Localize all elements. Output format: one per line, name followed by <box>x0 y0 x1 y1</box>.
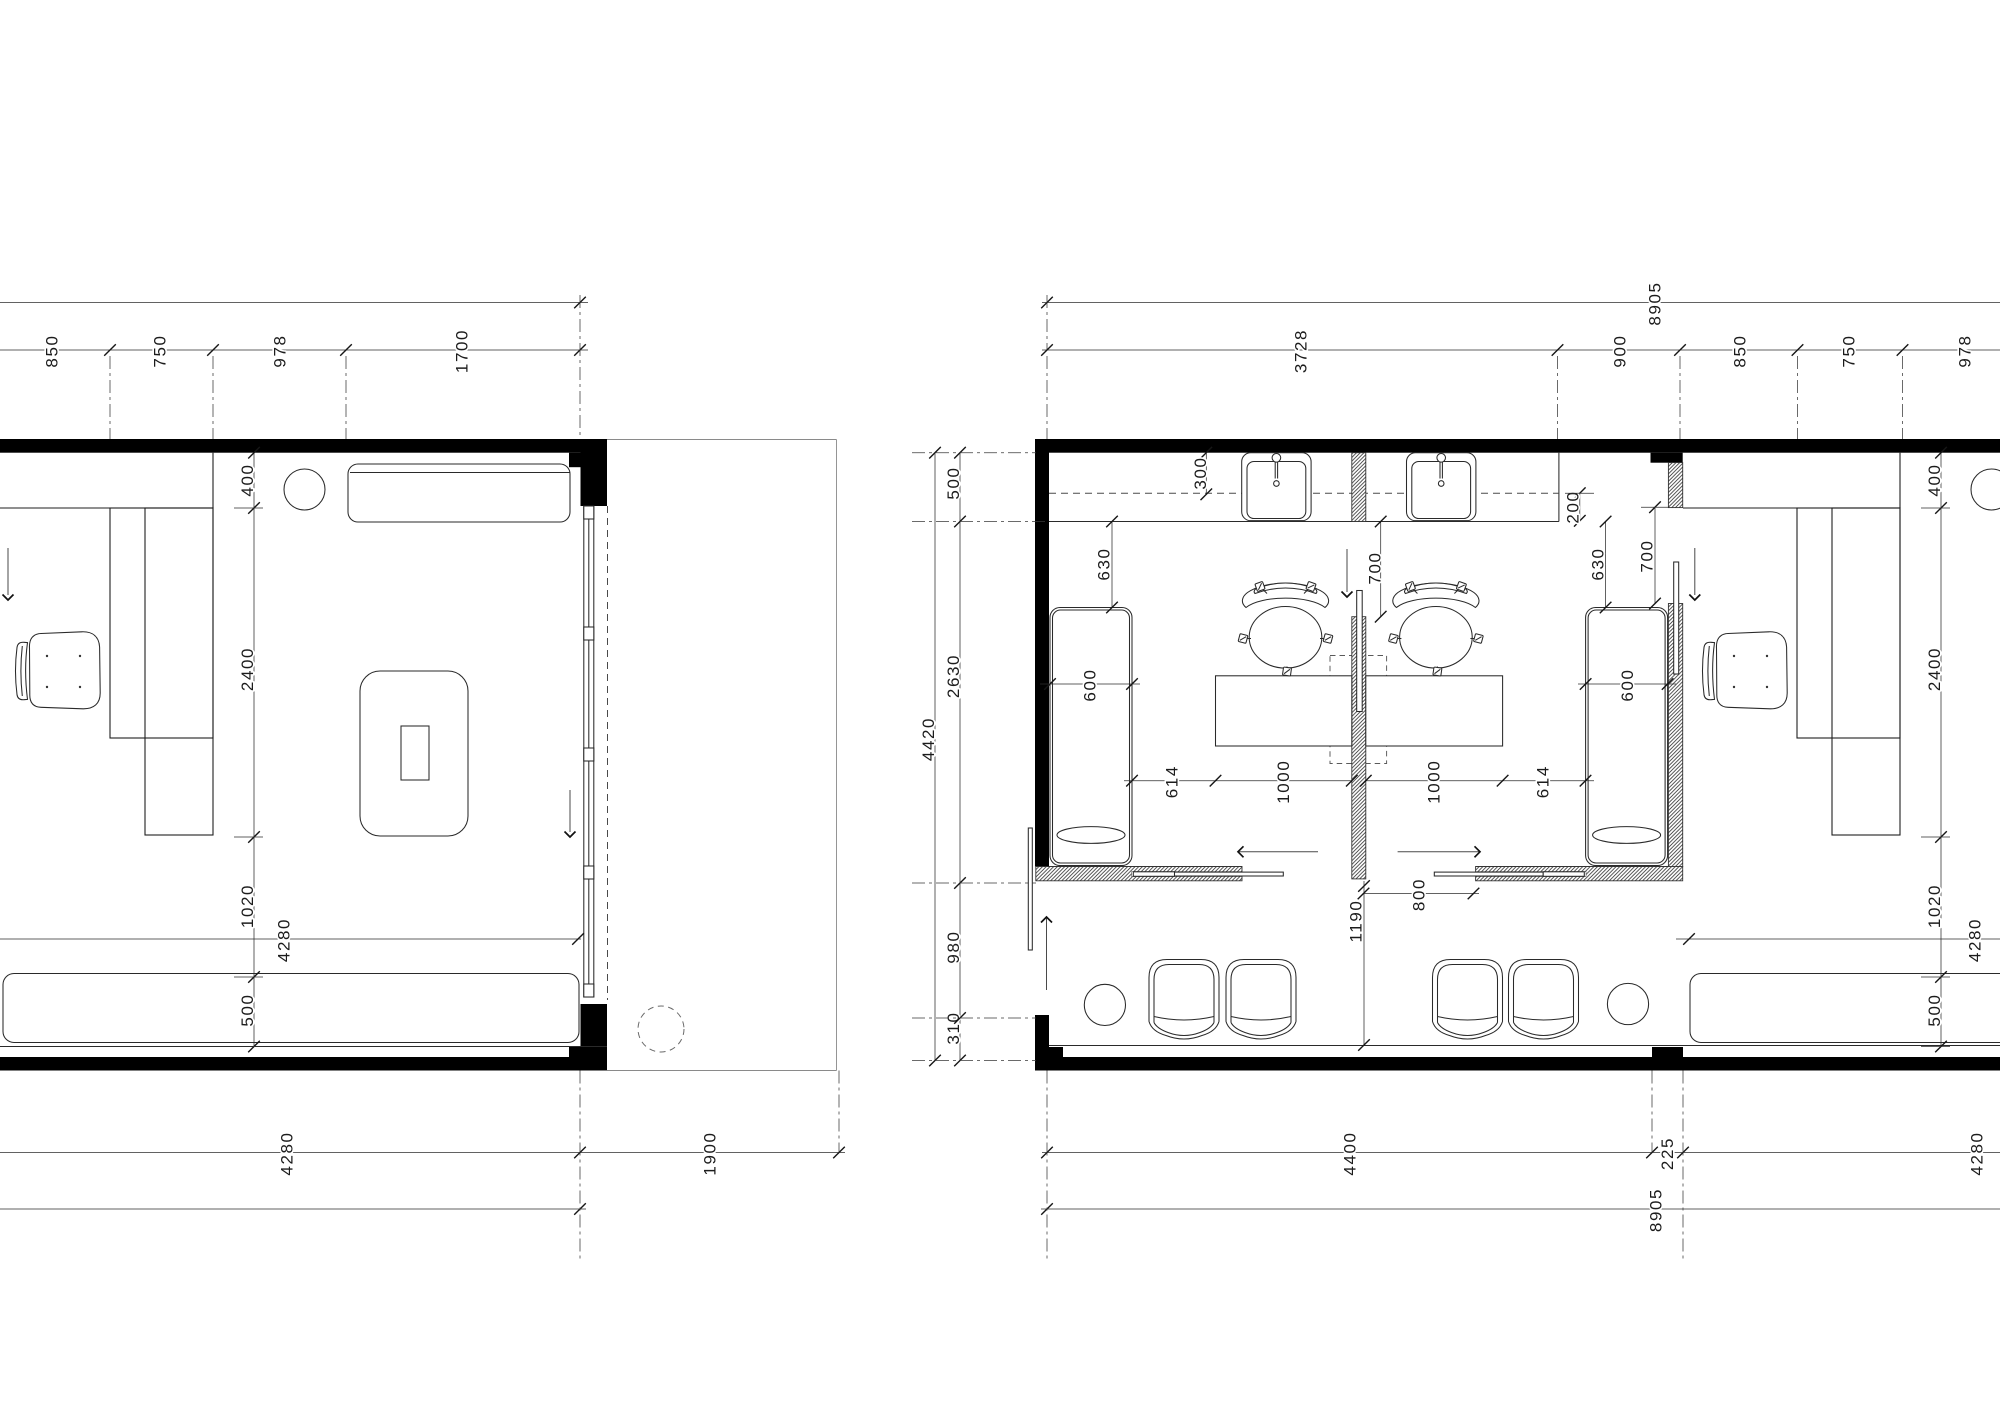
svg-text:700: 700 <box>1366 551 1385 584</box>
svg-text:4280: 4280 <box>1966 918 1985 962</box>
svg-text:630: 630 <box>1589 547 1608 580</box>
svg-text:200: 200 <box>1564 490 1583 523</box>
svg-text:1700: 1700 <box>453 329 472 373</box>
svg-text:8905: 8905 <box>1646 281 1665 325</box>
svg-text:310: 310 <box>944 1011 963 1044</box>
svg-text:4280: 4280 <box>1968 1131 1987 1175</box>
svg-text:1020: 1020 <box>1925 884 1944 928</box>
svg-text:1000: 1000 <box>1425 760 1444 804</box>
svg-text:225: 225 <box>1658 1137 1677 1170</box>
svg-text:4280: 4280 <box>278 1131 297 1175</box>
svg-text:700: 700 <box>1638 539 1657 572</box>
svg-text:300: 300 <box>1191 456 1210 489</box>
svg-text:614: 614 <box>1163 765 1182 798</box>
svg-text:850: 850 <box>43 334 62 367</box>
svg-text:900: 900 <box>1611 334 1630 367</box>
svg-text:500: 500 <box>238 993 257 1026</box>
svg-text:600: 600 <box>1618 668 1637 701</box>
svg-text:978: 978 <box>1956 334 1975 367</box>
svg-text:1000: 1000 <box>1274 760 1293 804</box>
svg-text:2400: 2400 <box>1925 647 1944 691</box>
svg-text:4400: 4400 <box>1341 1131 1360 1175</box>
svg-text:2630: 2630 <box>944 654 963 698</box>
svg-text:4280: 4280 <box>275 918 294 962</box>
svg-text:1190: 1190 <box>1347 900 1366 943</box>
svg-text:750: 750 <box>1840 334 1859 367</box>
svg-text:8905: 8905 <box>1647 1188 1666 1232</box>
svg-text:500: 500 <box>1925 993 1944 1026</box>
svg-text:630: 630 <box>1095 547 1114 580</box>
svg-text:400: 400 <box>1925 463 1944 496</box>
svg-text:400: 400 <box>238 463 257 496</box>
svg-text:980: 980 <box>944 930 963 963</box>
svg-text:500: 500 <box>944 466 963 499</box>
svg-text:2400: 2400 <box>238 647 257 691</box>
svg-text:978: 978 <box>271 334 290 367</box>
svg-text:1900: 1900 <box>701 1131 720 1175</box>
svg-text:600: 600 <box>1081 668 1100 701</box>
svg-text:750: 750 <box>151 334 170 367</box>
svg-text:4420: 4420 <box>919 717 938 761</box>
svg-text:1020: 1020 <box>238 884 257 928</box>
svg-text:614: 614 <box>1534 765 1553 798</box>
svg-text:3728: 3728 <box>1292 329 1311 373</box>
svg-text:800: 800 <box>1410 878 1429 911</box>
svg-text:850: 850 <box>1731 334 1750 367</box>
